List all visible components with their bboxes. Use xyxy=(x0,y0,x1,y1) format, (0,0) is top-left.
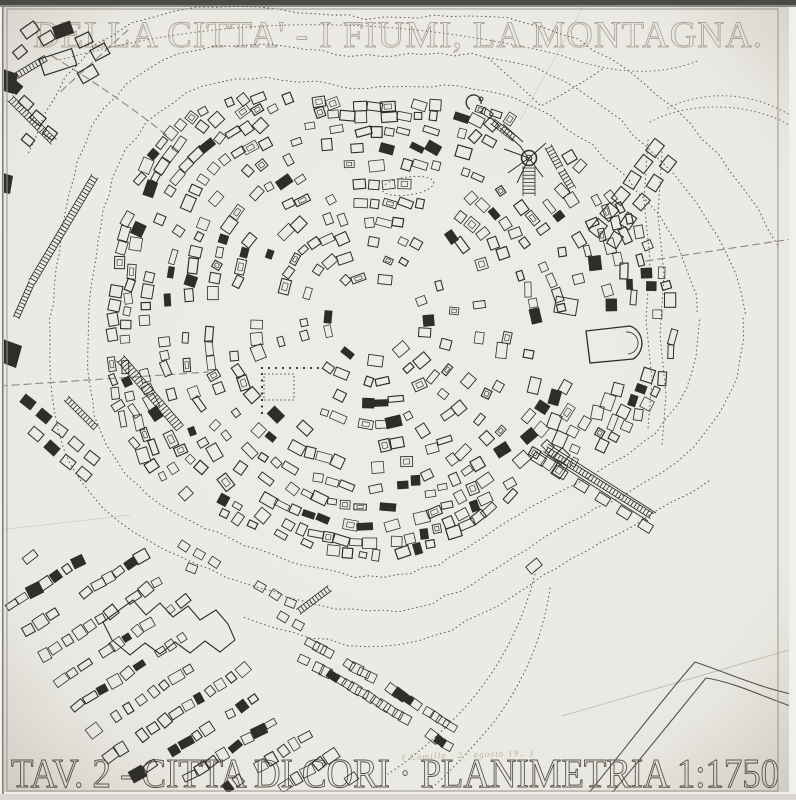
scan-edge-left xyxy=(2,6,4,794)
scan-edge-top xyxy=(0,0,796,5)
vignette xyxy=(4,6,789,792)
scanned-map-page: DELLA CITTA' - I FIUMI, LA MONTAGNA. TAV… xyxy=(0,0,796,800)
scan-edge-bottom xyxy=(0,794,796,800)
map-svg: DELLA CITTA' - I FIUMI, LA MONTAGNA. TAV… xyxy=(0,0,796,800)
